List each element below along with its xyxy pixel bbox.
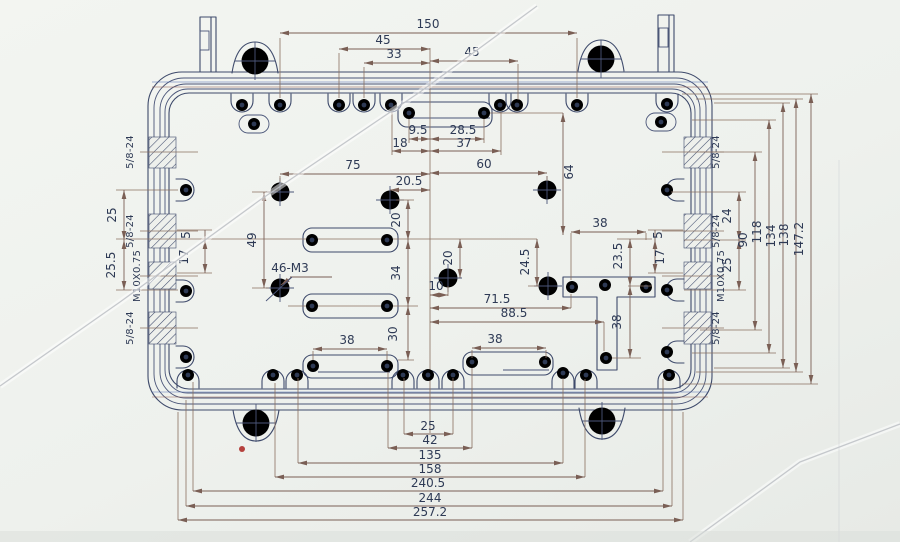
thread-bushings xyxy=(140,137,724,344)
dim-9-5: 9.5 xyxy=(408,123,427,137)
scanned-drawing-page: 150 45 33 45 9.5 28.5 18 37 64 75 60 20.… xyxy=(0,0,900,542)
dim-20-center: 20 xyxy=(441,250,455,265)
dim-134: 134 xyxy=(764,225,778,248)
dim-90: 90 xyxy=(736,232,750,247)
thread-callout-left-4: 5/8-24 xyxy=(125,311,136,345)
dim-257-2: 257.2 xyxy=(413,505,447,519)
thread-callout-left-1: 5/8-24 xyxy=(125,135,136,169)
dim-33: 33 xyxy=(386,47,401,61)
dim-17-right: 17 xyxy=(653,249,667,264)
dim-24-right: 24 xyxy=(720,208,734,223)
note-46-m3: 46-M3 xyxy=(271,261,309,275)
dim-10: 10 xyxy=(428,279,443,293)
dim-38-top: 38 xyxy=(592,216,607,230)
dim-158: 158 xyxy=(419,462,442,476)
dim-37: 37 xyxy=(456,136,471,150)
dim-60: 60 xyxy=(476,157,491,171)
dim-49: 49 xyxy=(245,232,259,247)
dim-34: 34 xyxy=(389,265,403,280)
dim-38-bottom-right: 38 xyxy=(487,332,502,346)
mount-hole-crosshair xyxy=(582,402,622,440)
dim-20-5: 20.5 xyxy=(396,174,423,188)
thread-callout-left-2: 5/8-24 xyxy=(125,214,136,248)
dim-138: 138 xyxy=(777,224,791,247)
dim-75: 75 xyxy=(345,158,360,172)
thread-callout-right-1: 5/8-24 xyxy=(711,135,722,169)
dim-244: 244 xyxy=(419,491,442,505)
dim-147-2: 147.2 xyxy=(792,222,806,256)
dim-25-right: 25 xyxy=(720,257,734,272)
dim-25-left: 25 xyxy=(105,207,119,222)
dim-5-left: 5 xyxy=(179,231,193,239)
red-ink-dot xyxy=(239,446,245,452)
dim-118: 118 xyxy=(750,221,764,244)
paper-shadow xyxy=(0,531,900,542)
dim-240-5: 240.5 xyxy=(411,476,445,490)
dim-71-5: 71.5 xyxy=(484,292,511,306)
paper-crease xyxy=(690,424,900,542)
dim-38-bottom-left: 38 xyxy=(339,333,354,347)
dim-88-5: 88.5 xyxy=(501,306,528,320)
thread-callout-right-4: 5/8-24 xyxy=(711,311,722,345)
dim-45-left: 45 xyxy=(375,33,390,47)
dim-5-right: 5 xyxy=(651,231,665,239)
dim-42: 42 xyxy=(422,433,437,447)
dim-18: 18 xyxy=(392,136,407,150)
paper-crease xyxy=(690,424,900,542)
dim-23-5: 23.5 xyxy=(611,243,625,270)
dim-64: 64 xyxy=(562,164,576,179)
dim-30: 30 xyxy=(386,326,400,341)
dim-25-5-left: 25.5 xyxy=(104,252,118,279)
mount-hole-crosshair xyxy=(235,42,275,80)
dim-24-5: 24.5 xyxy=(518,249,532,276)
dim-20: 20 xyxy=(389,212,403,227)
dim-25-bottom: 25 xyxy=(420,419,435,433)
dim-135: 135 xyxy=(419,448,442,462)
enclosure-engineering-drawing: 150 45 33 45 9.5 28.5 18 37 64 75 60 20.… xyxy=(0,0,900,542)
dim-38-stem: 38 xyxy=(610,314,624,329)
dim-150: 150 xyxy=(417,17,440,31)
dim-28-5: 28.5 xyxy=(450,123,477,137)
